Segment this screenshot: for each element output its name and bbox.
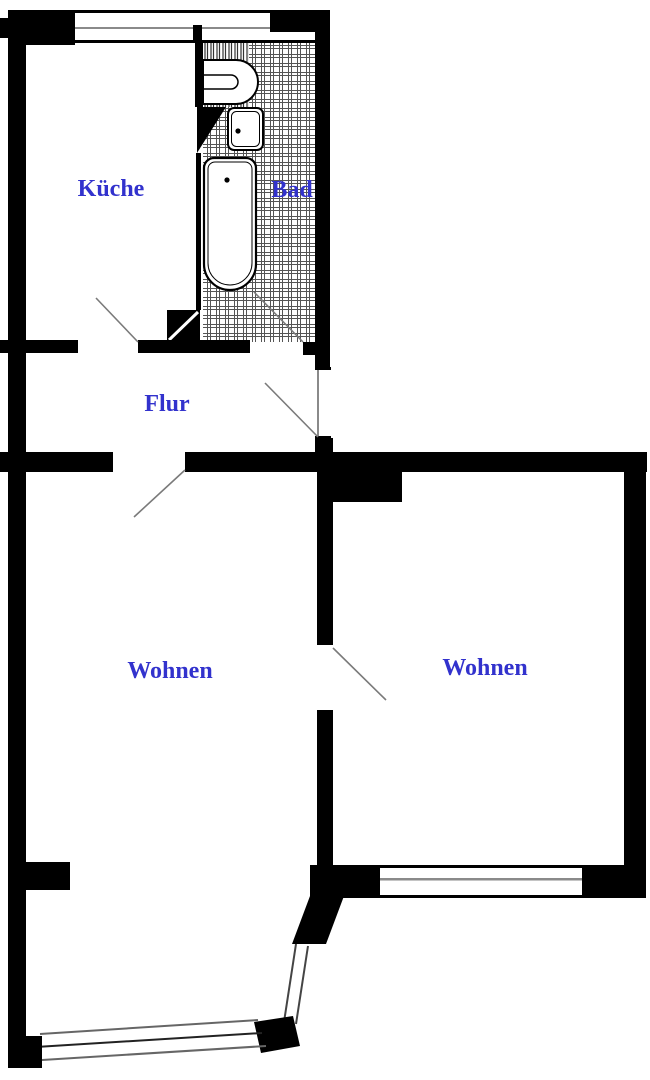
wall-corner-top-left xyxy=(8,10,75,45)
bathtub-icon xyxy=(204,158,256,290)
bay-window-long-line2 xyxy=(36,1033,262,1047)
wall-wohnen-right-top xyxy=(318,452,647,472)
wall-corner-bottom-left xyxy=(8,1036,42,1068)
wall-left-outer xyxy=(8,10,26,1068)
wohnen-window-outer-line xyxy=(340,895,646,898)
wall-corner-top-right xyxy=(270,10,330,32)
wall-kueche-flur-left xyxy=(8,340,78,353)
entry-door-frame-line xyxy=(317,370,319,436)
washbasin-icon xyxy=(228,108,263,150)
wohnen-window-inner-line xyxy=(380,865,582,868)
bathtub-drain-dot xyxy=(224,177,229,182)
wall-bad-flur-stub xyxy=(303,342,330,355)
window-top-glazing-line xyxy=(73,27,270,29)
bay-window-steep-line2 xyxy=(296,946,308,1024)
wall-tick-top-left xyxy=(0,18,8,38)
room-label-kueche: Küche xyxy=(78,176,145,202)
wall-wohnen-bottom-right-block xyxy=(582,865,646,898)
kueche-door-swing xyxy=(96,298,138,342)
wall-between-wohnen-upper xyxy=(317,438,333,645)
wall-tick-mid-left xyxy=(0,340,8,353)
wall-kueche-flur-right xyxy=(138,340,250,353)
wall-kueche-bad-lower xyxy=(196,153,201,310)
entry-door-swing xyxy=(265,383,318,437)
wall-tick-lower-left xyxy=(0,452,8,472)
bay-window-long-line1 xyxy=(40,1020,258,1034)
wohnen-right-door-swing xyxy=(333,648,386,700)
wall-kueche-bad-upper xyxy=(195,42,203,107)
room-label-wohnen-right: Wohnen xyxy=(442,655,527,681)
wall-bay-corner-block xyxy=(254,1016,300,1053)
bay-window-long-line3 xyxy=(42,1046,266,1060)
window-mullion-tick xyxy=(193,25,202,43)
wall-bay-diagonal xyxy=(292,896,344,944)
room-label-flur: Flur xyxy=(144,391,190,417)
wall-flur-wohnen-left xyxy=(8,452,113,472)
room-label-wohnen-left: Wohnen xyxy=(127,658,212,684)
wall-wohnen-right-east xyxy=(624,452,646,898)
wall-stub-bottom-left xyxy=(26,862,70,890)
bay-window-steep-line1 xyxy=(284,944,296,1022)
wohnen-window-glazing-line xyxy=(380,878,582,881)
floor-plan: Küche Bad Flur Wohnen Wohnen xyxy=(0,0,650,1080)
washbasin-tap-dot xyxy=(235,128,240,133)
wohnen-left-door-swing xyxy=(134,470,185,517)
wall-flur-wohnen-right xyxy=(185,452,333,472)
room-label-bad: Bad xyxy=(271,177,313,203)
floor-plan-drawing: Küche Bad Flur Wohnen Wohnen xyxy=(0,0,650,1080)
wall-right-upper xyxy=(315,32,330,370)
wohnen-right-chimney-block xyxy=(333,472,402,502)
entry-door-jamb-top xyxy=(315,367,331,370)
toilet-icon xyxy=(203,60,258,104)
wall-wohnen-bottom-junction xyxy=(310,865,380,898)
wall-between-wohnen-lower xyxy=(317,710,333,868)
